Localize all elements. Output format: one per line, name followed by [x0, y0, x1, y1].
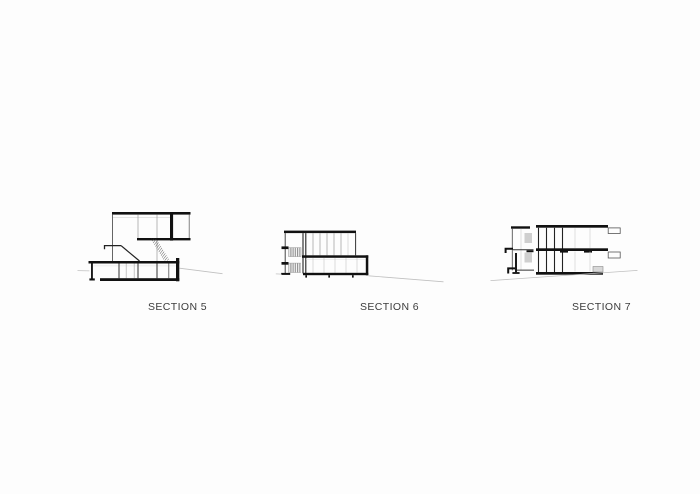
section-5-label: SECTION 5: [148, 301, 207, 313]
section-5-drawing: [70, 203, 230, 291]
right-wall: [176, 258, 179, 281]
column-foot: [352, 275, 354, 277]
roof-slab: [536, 225, 608, 228]
balcony-railing-mid: [608, 252, 620, 258]
louver-stack-upper: [289, 248, 301, 257]
ground-line-right: [369, 276, 444, 282]
ground-line-right: [180, 268, 223, 274]
section5-ground: [78, 268, 223, 274]
balcony-railing-upper: [608, 228, 620, 234]
beam-cut: [560, 251, 568, 253]
stair-flight-line: [121, 246, 140, 261]
section7-ground: [491, 270, 638, 280]
stair-baluster-hatch: [151, 239, 170, 261]
left-wall: [91, 264, 93, 279]
right-wall: [366, 255, 369, 275]
beam-cut: [584, 251, 592, 253]
section-7-drawing: [486, 216, 646, 292]
ground-floor-slab: [303, 273, 368, 275]
section-6-label: SECTION 6: [360, 301, 419, 313]
roof-slab: [284, 231, 356, 234]
left-wall-footing: [89, 278, 94, 280]
mid-floor-slab: [302, 255, 368, 257]
section6-shell: [281, 231, 356, 275]
mid-floor-slab: [536, 248, 608, 251]
ground-line: [491, 270, 638, 280]
section-7-label: SECTION 7: [572, 301, 631, 313]
roof-slab: [112, 212, 191, 215]
section7-left-core: [506, 226, 534, 274]
section6-upper-level: [313, 233, 356, 255]
duct-block-upper: [525, 233, 533, 243]
column-foot: [305, 275, 307, 277]
beam-cut: [527, 250, 534, 252]
louver-stack-lower: [289, 263, 301, 272]
drawing-sheet: SECTION 5 SECTION 6 SECTION 7: [0, 0, 700, 494]
mid-floor-slab: [137, 238, 191, 240]
section7-floor-plates: [536, 225, 620, 275]
terrace-planter: [593, 267, 603, 273]
first-floor-slab: [89, 261, 180, 264]
left-beam-cut: [282, 246, 289, 249]
core-column: [515, 253, 517, 272]
ground-floor-slab: [100, 278, 179, 281]
top-stub-slab: [511, 226, 530, 228]
section5-upper-floor: [112, 212, 191, 261]
duct-block-lower: [525, 253, 533, 263]
left-wall-footing: [281, 273, 290, 275]
upper-right-wall: [170, 212, 173, 241]
column-foot: [328, 275, 330, 277]
section6-lower-level: [302, 255, 368, 277]
section5-lower-floor: [89, 258, 180, 281]
section5-stair: [105, 239, 170, 261]
section-6-drawing: [268, 220, 450, 292]
left-beam-cut: [282, 262, 289, 265]
column-footing: [512, 272, 519, 274]
